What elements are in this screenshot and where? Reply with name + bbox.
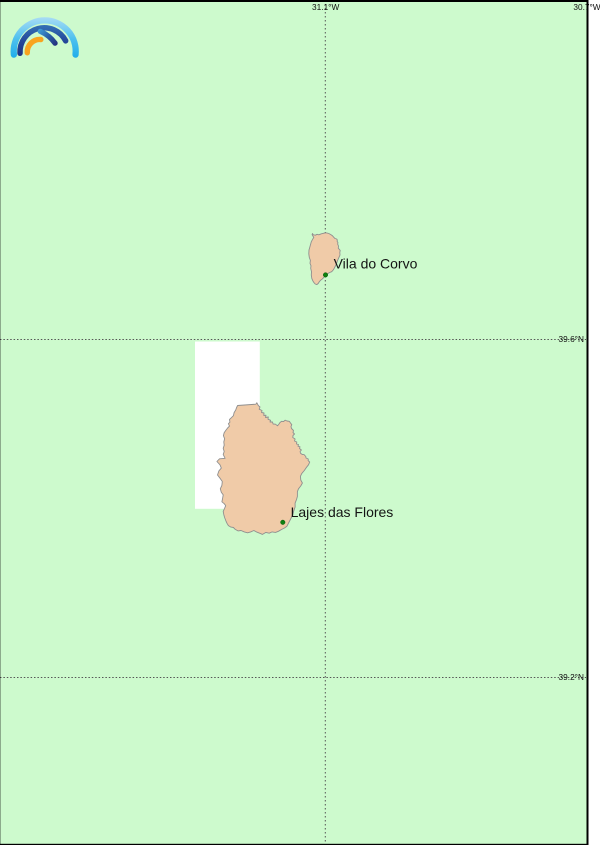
svg-text:39.6°N: 39.6°N bbox=[559, 334, 584, 344]
svg-text:Vila do Corvo: Vila do Corvo bbox=[334, 256, 418, 272]
svg-text:Lajes das Flores: Lajes das Flores bbox=[291, 504, 394, 520]
svg-text:39.2°N: 39.2°N bbox=[559, 672, 584, 682]
svg-text:31.1°W: 31.1°W bbox=[312, 2, 339, 12]
